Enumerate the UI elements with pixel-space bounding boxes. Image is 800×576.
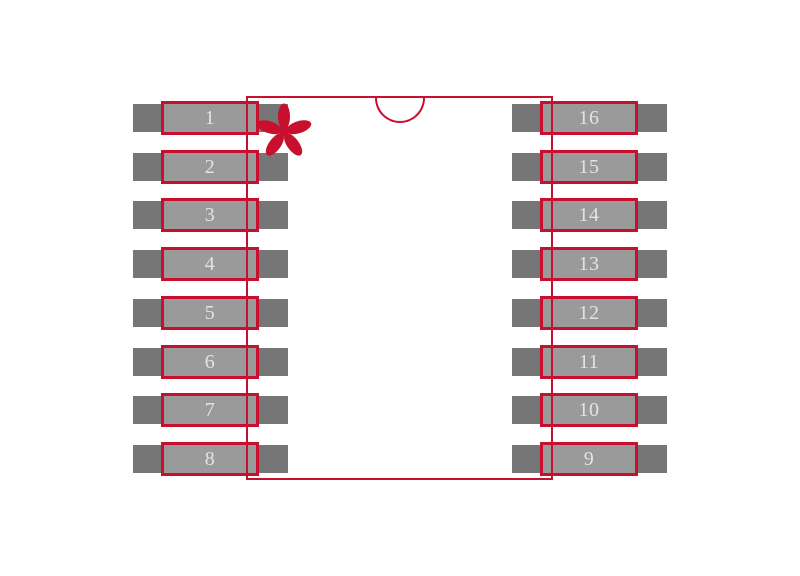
pin-number: 14 [579,205,600,225]
pin-number: 3 [205,205,216,225]
pin-number: 1 [205,108,216,128]
pin-lead-outline: 1 [161,101,259,135]
ic-footprint-diagram: 1 2 3 4 5 6 7 8 16 [0,0,800,576]
pad-pin-4: 4 [133,250,288,278]
pad-pin-5: 5 [133,299,288,327]
pad-pin-7: 7 [133,396,288,424]
pin-lead-outline: 15 [540,150,638,184]
pin1-end-notch-icon [375,98,425,123]
pin-number: 2 [205,157,216,177]
pin-number: 16 [579,108,600,128]
pin-number: 13 [579,254,600,274]
pin-number: 9 [584,449,595,469]
pad-pin-3: 3 [133,201,288,229]
pad-pin-16: 16 [512,104,667,132]
pad-pin-10: 10 [512,396,667,424]
pin-number: 4 [205,254,216,274]
pin-lead-outline: 12 [540,296,638,330]
pin-lead-outline: 6 [161,345,259,379]
pad-pin-8: 8 [133,445,288,473]
pad-pin-15: 15 [512,153,667,181]
package-body-outline [246,96,553,480]
pin-lead-outline: 8 [161,442,259,476]
pad-pin-14: 14 [512,201,667,229]
pin-lead-outline: 9 [540,442,638,476]
pad-pin-1: 1 [133,104,288,132]
pin-lead-outline: 5 [161,296,259,330]
pad-pin-11: 11 [512,348,667,376]
pad-pin-13: 13 [512,250,667,278]
pad-pin-2: 2 [133,153,288,181]
pin-lead-outline: 10 [540,393,638,427]
pin-number: 7 [205,400,216,420]
pad-pin-12: 12 [512,299,667,327]
pin-lead-outline: 13 [540,247,638,281]
pin-lead-outline: 3 [161,198,259,232]
pin-number: 6 [205,352,216,372]
pin-lead-outline: 2 [161,150,259,184]
pin-lead-outline: 14 [540,198,638,232]
pin-number: 12 [579,303,600,323]
pin-number: 11 [579,352,599,372]
pin-lead-outline: 16 [540,101,638,135]
pin-number: 15 [579,157,600,177]
pin-lead-outline: 11 [540,345,638,379]
pin-number: 8 [205,449,216,469]
pin-number: 5 [205,303,216,323]
pad-pin-6: 6 [133,348,288,376]
pin-lead-outline: 7 [161,393,259,427]
pad-pin-9: 9 [512,445,667,473]
pin-number: 10 [579,400,600,420]
pin-lead-outline: 4 [161,247,259,281]
